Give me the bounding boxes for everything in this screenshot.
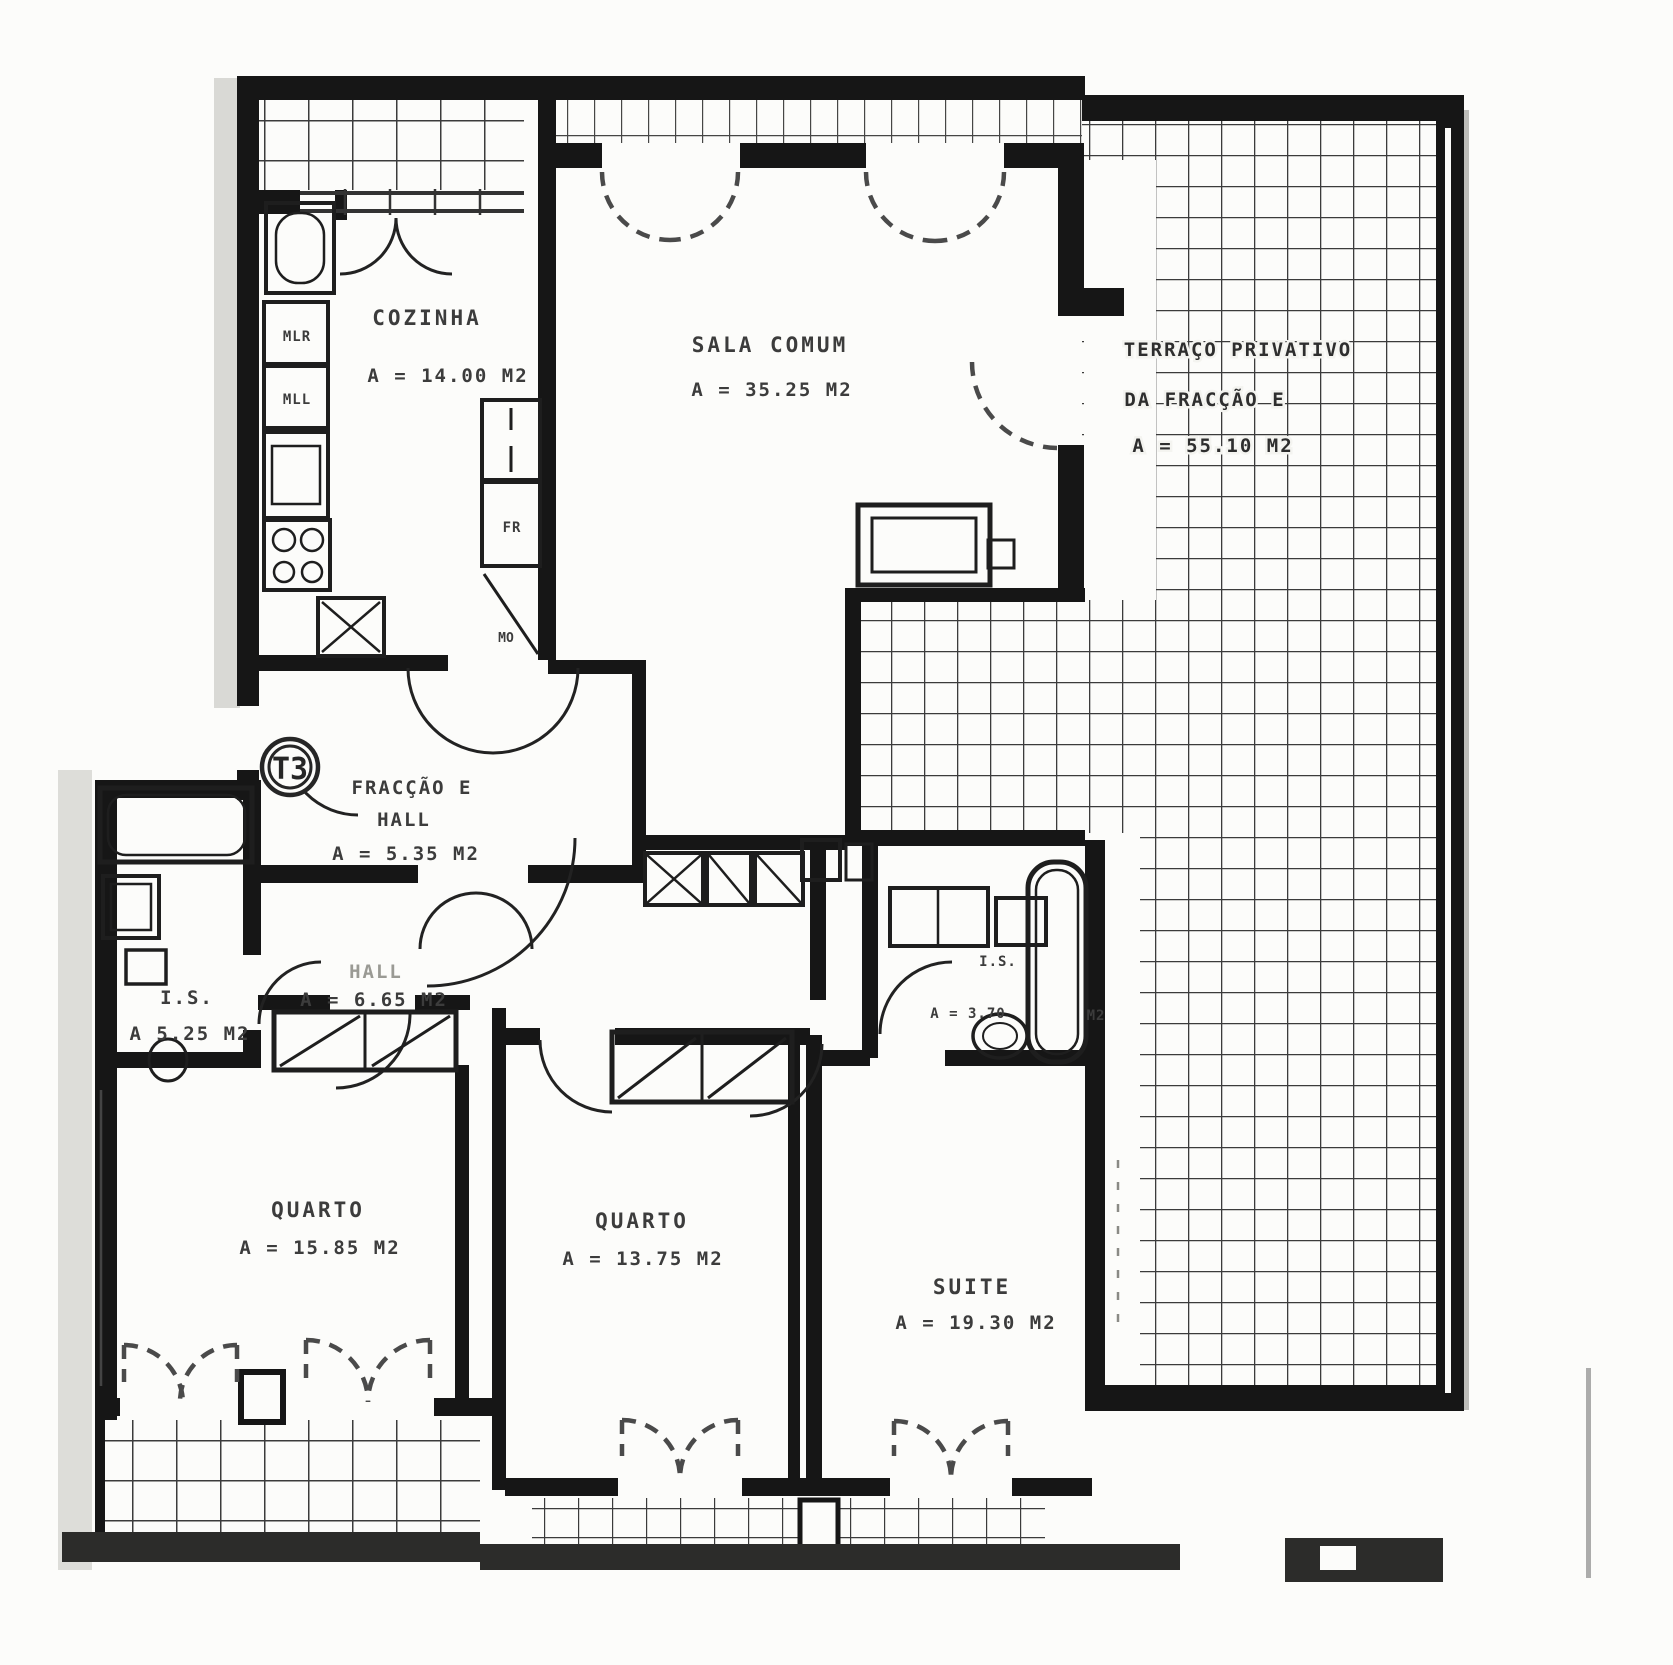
wall: [500, 1028, 540, 1045]
shaft-box: [647, 855, 701, 903]
scan-streak: [214, 78, 240, 708]
french-door-arc: [622, 1420, 680, 1478]
private-terrace-tiles-join: [1085, 600, 1140, 833]
door-swing-arc: [420, 893, 476, 949]
is-suite-area: A = 3.70: [930, 1006, 1005, 1022]
wall: [1058, 288, 1124, 316]
stove-burner-icon: [274, 562, 294, 582]
wall: [434, 1398, 506, 1416]
wall: [95, 1416, 105, 1540]
door-swing-arc: [880, 962, 952, 1034]
scan-band: [62, 1532, 480, 1562]
cozinha-label: COZINHA: [372, 306, 482, 330]
kitchen-terrace-tiles: [259, 98, 524, 190]
top-balcony-tiles: [556, 98, 1082, 143]
wall: [538, 98, 556, 660]
stove-burner-icon: [302, 562, 322, 582]
scan-band: [480, 1544, 1180, 1570]
wall: [820, 1050, 870, 1066]
wall: [1012, 1478, 1092, 1496]
wall: [455, 1065, 469, 1415]
french-door-arc: [306, 1340, 368, 1402]
inner-hall-area: A = 6.65 M2: [300, 989, 448, 1011]
door-swing-arc: [540, 1040, 612, 1112]
wall: [95, 1398, 120, 1416]
wall: [258, 865, 418, 883]
wall: [548, 660, 646, 674]
french-door-arc: [602, 172, 670, 240]
stove-burner-icon: [273, 529, 295, 551]
door-swing-arc: [396, 218, 452, 274]
wall: [810, 835, 826, 1000]
quarto2-area: A = 13.75 M2: [562, 1248, 723, 1270]
is-suite-label: I.S.: [979, 954, 1017, 970]
quarto1-label: QUARTO: [271, 1198, 365, 1222]
door-swing-arc: [340, 218, 396, 274]
wall: [1082, 95, 1462, 121]
kitchen-sink-icon: [322, 602, 380, 652]
fraccao-label: FRACÇÃO E: [352, 775, 473, 799]
scan-streak: [58, 770, 92, 1570]
left-balcony-tiles: [97, 1420, 480, 1536]
stove-burner-icon: [301, 529, 323, 551]
french-door-arc: [951, 1421, 1008, 1478]
wall: [237, 76, 1085, 100]
french-door-arc: [935, 172, 1004, 241]
bathtub-icon: [108, 795, 245, 855]
pillar: [241, 1372, 283, 1422]
oven-icon: [272, 446, 320, 504]
sala-comum-label: SALA COMUM: [692, 333, 848, 357]
shaft-box: [709, 855, 749, 903]
laundry-tub-icon: [276, 213, 324, 283]
is-left-area: A 5.25 M2: [130, 1023, 251, 1045]
wall: [1004, 143, 1084, 168]
wall: [740, 143, 866, 168]
bathtub-icon: [100, 788, 252, 862]
wall: [845, 588, 1085, 602]
tiled-areas: [97, 98, 1436, 1556]
wall-core: [1445, 128, 1451, 1393]
floor-plan-page: T3 COZINHA A = 14.00 M2 SALA COMUM A = 3…: [0, 0, 1673, 1665]
private-terrace-tiles-lower: [1140, 600, 1436, 1386]
scan-band: [1285, 1538, 1443, 1582]
fr-label: FR: [503, 520, 522, 536]
patio-tiles: [861, 600, 1085, 832]
wall: [1058, 445, 1084, 595]
cozinha-area: A = 14.00 M2: [367, 365, 528, 387]
wall: [862, 840, 878, 1058]
wall: [95, 1052, 261, 1068]
wall: [556, 143, 602, 168]
door-swing-arc: [476, 893, 532, 949]
shaft-box: [757, 855, 801, 903]
wall: [1058, 168, 1084, 288]
french-door-arc: [866, 172, 935, 241]
scan-streak: [1586, 1368, 1591, 1578]
scan-band-notch: [1320, 1546, 1356, 1570]
terraco-label-line2: DA FRACÇÃO E: [1124, 387, 1285, 411]
closet-icon: [280, 1012, 450, 1070]
is-suite-unit: M2: [1087, 1008, 1106, 1024]
toilet-icon: [126, 950, 166, 984]
floor-plan-drawing: T3 COZINHA A = 14.00 M2 SALA COMUM A = 3…: [0, 0, 1673, 1665]
terraco-area: A = 55.10 M2: [1132, 435, 1293, 457]
sala-comum-area: A = 35.25 M2: [691, 379, 852, 401]
wall: [492, 1008, 506, 1490]
wall: [528, 865, 632, 883]
french-door-arc: [670, 172, 738, 240]
cabinet-icon: [996, 898, 1046, 945]
mll-label: MLL: [283, 392, 311, 408]
inner-hall-label: HALL: [349, 961, 403, 983]
wall: [1140, 1385, 1440, 1411]
terrace-walkway-lower: [1105, 833, 1140, 1386]
washbasin-icon: [983, 1023, 1017, 1049]
entry-hall-label: HALL: [377, 809, 431, 831]
quarto2-label: QUARTO: [595, 1209, 689, 1233]
mlr-label: MLR: [283, 329, 311, 345]
door-swing-arc: [408, 668, 493, 753]
quarto1-area: A = 15.85 M2: [239, 1237, 400, 1259]
suite-area: A = 19.30 M2: [895, 1312, 1056, 1334]
french-door-arc: [894, 1421, 951, 1478]
french-door-arc: [124, 1345, 183, 1404]
french-door-arc: [680, 1420, 738, 1478]
wall: [806, 1035, 822, 1490]
terraco-label-line1: TERRAÇO PRIVATIVO: [1124, 339, 1352, 361]
mo-label: MO: [498, 631, 514, 646]
wall: [845, 830, 1085, 846]
entry-hall-area: A = 5.35 M2: [332, 843, 480, 865]
wall: [845, 592, 861, 842]
terrace-door-arc: [972, 362, 1058, 448]
unit-type-label: T3: [272, 752, 308, 787]
wall: [237, 76, 259, 706]
wall: [505, 1478, 618, 1496]
suite-label: SUITE: [933, 1275, 1011, 1299]
is-left-label: I.S.: [160, 987, 214, 1009]
fireplace-icon: [872, 518, 976, 572]
french-door-arc: [180, 1345, 237, 1402]
french-door-arc: [368, 1340, 430, 1402]
terrace-walkway-upper: [1084, 160, 1156, 600]
wall: [742, 1478, 890, 1496]
door-swing-arc: [493, 668, 578, 753]
unit-badge: T3: [262, 739, 318, 795]
